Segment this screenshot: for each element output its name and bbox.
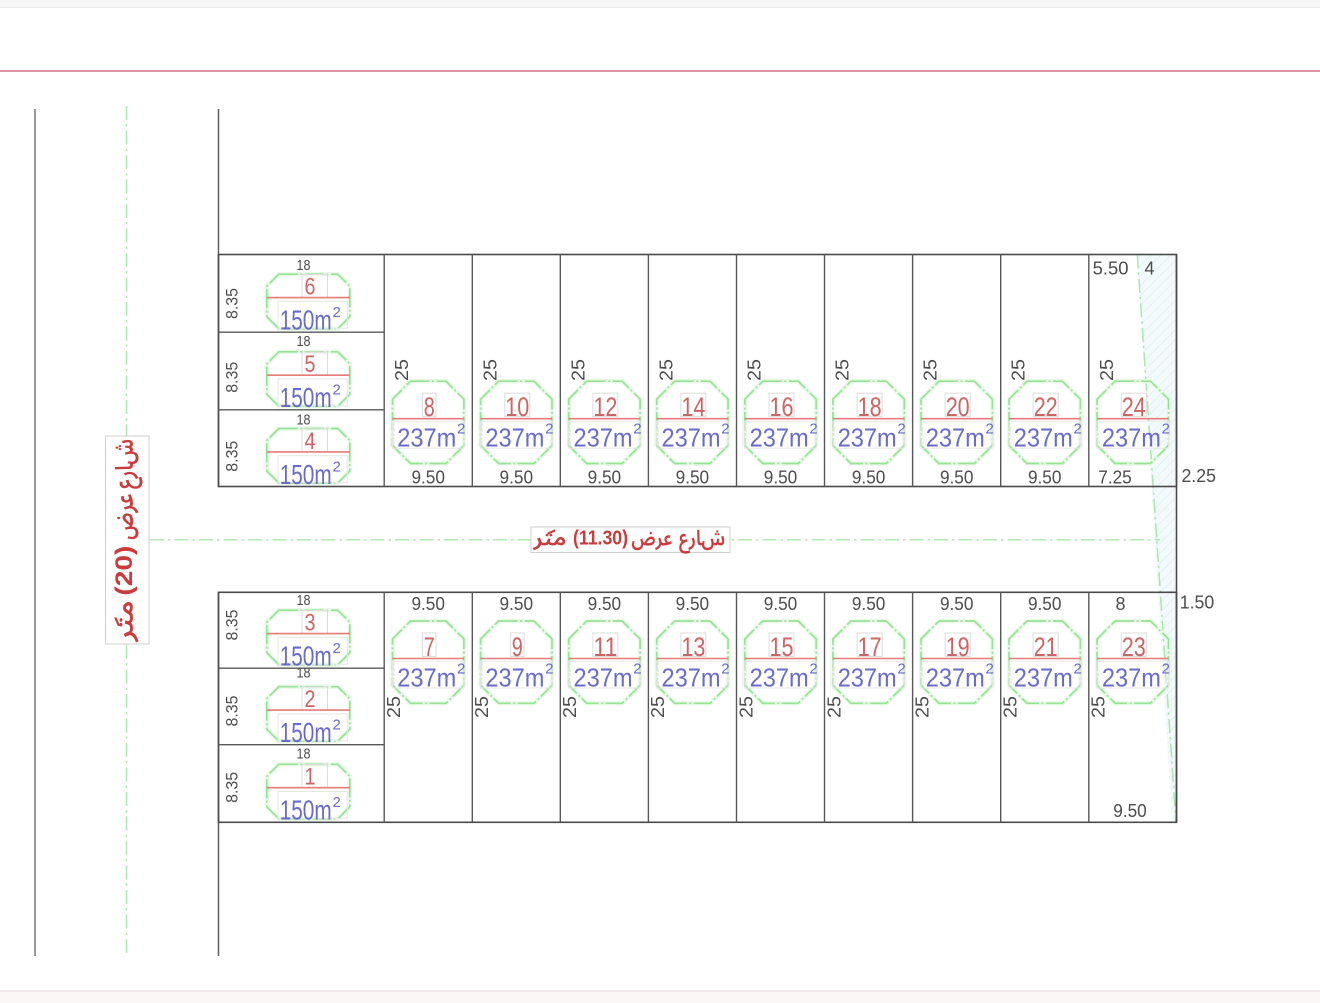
svg-text:25: 25 [736, 696, 756, 718]
svg-text:2.25: 2.25 [1181, 466, 1216, 486]
svg-text:9.50: 9.50 [676, 468, 710, 488]
svg-text:25: 25 [912, 696, 932, 718]
svg-text:20: 20 [946, 392, 970, 422]
svg-text:9.50: 9.50 [676, 594, 710, 614]
svg-text:2: 2 [1162, 660, 1170, 677]
svg-text:8.35: 8.35 [223, 772, 242, 803]
svg-text:15: 15 [770, 632, 794, 662]
svg-text:2: 2 [897, 421, 905, 438]
svg-text:25: 25 [384, 696, 404, 718]
svg-text:25: 25 [656, 359, 676, 381]
svg-text:2: 2 [721, 421, 729, 438]
svg-text:9.50: 9.50 [588, 468, 622, 488]
svg-text:18: 18 [297, 746, 311, 763]
svg-text:150m: 150m [280, 795, 332, 826]
svg-text:2: 2 [305, 686, 316, 713]
svg-text:2: 2 [333, 717, 341, 734]
svg-text:11: 11 [593, 632, 617, 662]
svg-text:237m: 237m [397, 423, 456, 453]
svg-text:2: 2 [457, 660, 465, 677]
svg-text:9.50: 9.50 [1028, 468, 1062, 488]
svg-text:9.50: 9.50 [764, 594, 798, 614]
svg-text:237m: 237m [485, 423, 544, 453]
svg-text:2: 2 [333, 304, 341, 321]
svg-text:16: 16 [770, 392, 794, 422]
svg-text:1.50: 1.50 [1180, 593, 1215, 613]
svg-text:2: 2 [986, 421, 994, 438]
svg-text:237m: 237m [485, 663, 544, 693]
svg-text:8: 8 [424, 392, 435, 422]
svg-text:9.50: 9.50 [940, 594, 974, 614]
svg-text:25: 25 [745, 359, 765, 381]
svg-text:237m: 237m [1102, 423, 1161, 453]
svg-text:25: 25 [1089, 696, 1109, 718]
svg-text:150m: 150m [280, 305, 332, 336]
svg-text:2: 2 [333, 794, 341, 811]
svg-text:5: 5 [305, 351, 316, 378]
svg-text:9.50: 9.50 [500, 468, 534, 488]
svg-text:(20): (20) [111, 546, 138, 596]
svg-text:17: 17 [858, 632, 882, 662]
svg-text:2: 2 [333, 640, 341, 657]
svg-text:9: 9 [512, 632, 523, 662]
svg-text:12: 12 [593, 392, 617, 422]
svg-text:237m: 237m [574, 663, 633, 693]
svg-text:237m: 237m [750, 663, 809, 693]
svg-text:9.50: 9.50 [588, 594, 622, 614]
svg-text:10: 10 [505, 392, 529, 422]
svg-text:237m: 237m [662, 423, 721, 453]
svg-text:9.50: 9.50 [852, 468, 886, 488]
svg-text:25: 25 [1009, 359, 1029, 381]
svg-text:22: 22 [1034, 392, 1058, 422]
svg-text:18: 18 [297, 411, 311, 428]
svg-text:18: 18 [297, 257, 311, 274]
svg-text:6: 6 [305, 274, 316, 301]
svg-text:25: 25 [392, 359, 412, 381]
svg-text:9.50: 9.50 [411, 594, 445, 614]
svg-text:9.50: 9.50 [500, 594, 534, 614]
svg-text:3: 3 [305, 610, 316, 637]
svg-text:2: 2 [721, 660, 729, 677]
svg-text:2: 2 [1074, 421, 1082, 438]
svg-text:237m: 237m [750, 423, 809, 453]
svg-text:150m: 150m [280, 459, 332, 490]
svg-text:8.35: 8.35 [223, 441, 242, 472]
svg-text:237m: 237m [662, 663, 721, 693]
svg-text:7: 7 [424, 632, 435, 662]
svg-text:(11.30): (11.30) [573, 528, 628, 550]
svg-text:237m: 237m [574, 423, 633, 453]
svg-text:1: 1 [305, 764, 316, 791]
svg-text:25: 25 [1001, 696, 1021, 718]
svg-text:2: 2 [333, 458, 341, 475]
svg-text:9.50: 9.50 [411, 468, 445, 488]
svg-text:9.50: 9.50 [940, 468, 974, 488]
svg-text:2: 2 [1074, 660, 1082, 677]
svg-text:2: 2 [457, 421, 465, 438]
svg-text:9.50: 9.50 [764, 468, 798, 488]
svg-text:9.50: 9.50 [852, 594, 886, 614]
svg-text:24: 24 [1122, 392, 1146, 422]
svg-text:25: 25 [472, 696, 492, 718]
svg-text:4: 4 [305, 428, 316, 455]
svg-text:8.35: 8.35 [223, 696, 242, 727]
svg-text:18: 18 [297, 664, 311, 681]
svg-text:237m: 237m [926, 423, 985, 453]
svg-text:18: 18 [297, 333, 311, 350]
svg-text:2: 2 [545, 660, 553, 677]
svg-text:25: 25 [568, 359, 588, 381]
svg-text:8.35: 8.35 [223, 610, 242, 641]
svg-text:23: 23 [1122, 632, 1146, 662]
svg-text:2: 2 [1162, 421, 1170, 438]
svg-text:2: 2 [809, 421, 817, 438]
svg-text:14: 14 [681, 392, 705, 422]
svg-text:2: 2 [333, 382, 341, 399]
svg-text:237m: 237m [838, 423, 897, 453]
svg-text:2: 2 [897, 660, 905, 677]
svg-text:5.50: 5.50 [1093, 259, 1129, 279]
svg-text:8.35: 8.35 [223, 288, 242, 319]
svg-text:237m: 237m [1014, 663, 1073, 693]
svg-text:25: 25 [560, 696, 580, 718]
svg-text:4: 4 [1144, 258, 1154, 278]
svg-text:18: 18 [858, 392, 882, 422]
svg-text:237m: 237m [1102, 663, 1161, 693]
svg-text:237m: 237m [397, 663, 456, 693]
svg-text:18: 18 [297, 592, 311, 609]
svg-text:25: 25 [921, 359, 941, 381]
svg-text:25: 25 [824, 696, 844, 718]
svg-text:9.50: 9.50 [1028, 594, 1062, 614]
svg-text:13: 13 [681, 632, 705, 662]
svg-text:25: 25 [648, 696, 668, 718]
svg-text:25: 25 [480, 359, 500, 381]
svg-text:237m: 237m [926, 663, 985, 693]
svg-text:19: 19 [946, 632, 970, 662]
svg-text:21: 21 [1034, 632, 1058, 662]
svg-text:2: 2 [633, 421, 641, 438]
svg-text:8: 8 [1115, 594, 1125, 614]
svg-text:25: 25 [833, 359, 853, 381]
svg-text:7.25: 7.25 [1098, 468, 1132, 488]
svg-text:8.35: 8.35 [223, 362, 242, 393]
svg-text:9.50: 9.50 [1113, 801, 1147, 821]
svg-text:2: 2 [809, 660, 817, 677]
svg-text:2: 2 [633, 660, 641, 677]
svg-text:150m: 150m [280, 382, 332, 413]
svg-text:237m: 237m [838, 663, 897, 693]
svg-text:2: 2 [986, 660, 994, 677]
svg-text:25: 25 [1097, 359, 1117, 381]
svg-text:2: 2 [545, 421, 553, 438]
svg-text:237m: 237m [1014, 423, 1073, 453]
svg-text:150m: 150m [280, 717, 332, 748]
